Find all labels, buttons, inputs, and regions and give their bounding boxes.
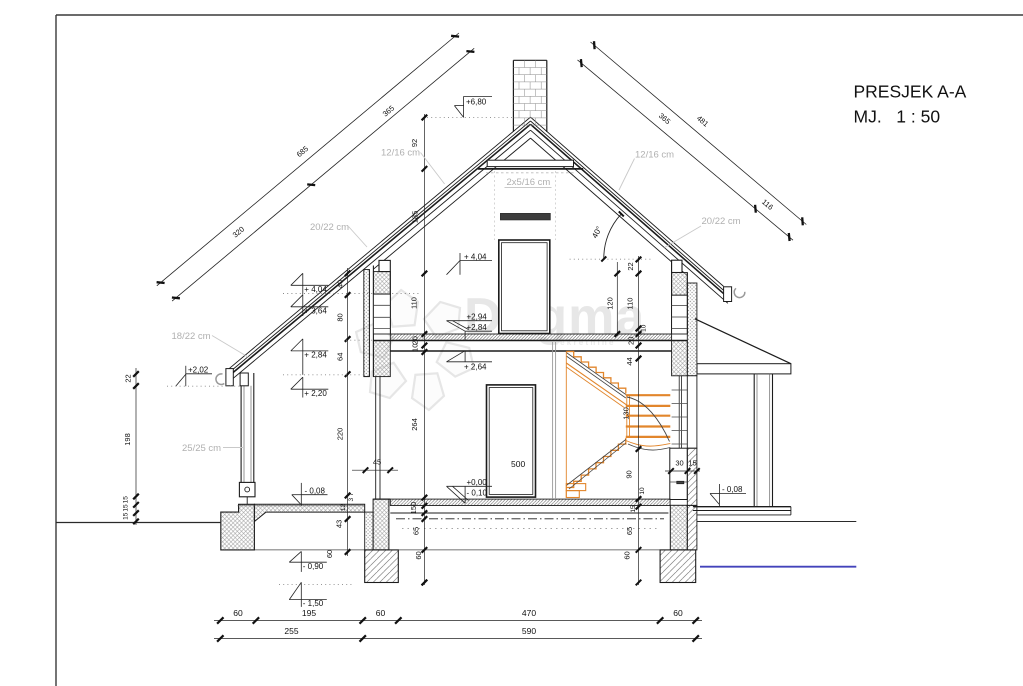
svg-text:+ 2,64: + 2,64 [464, 362, 487, 371]
svg-text:65: 65 [625, 527, 634, 535]
svg-text:110: 110 [626, 298, 635, 310]
svg-text:- 0,08: - 0,08 [305, 486, 326, 495]
svg-text:- 0,10: - 0,10 [467, 488, 488, 497]
svg-text:- 1,50: - 1,50 [303, 599, 324, 608]
svg-text:40: 40 [336, 280, 345, 288]
svg-text:22: 22 [626, 262, 635, 270]
svg-text:195: 195 [302, 608, 316, 618]
svg-text:90: 90 [625, 470, 634, 478]
svg-text:60: 60 [376, 608, 386, 618]
svg-text:15: 15 [123, 512, 130, 520]
svg-text:15: 15 [688, 459, 696, 468]
svg-text:+ 3,64: + 3,64 [304, 306, 327, 315]
svg-text:185: 185 [411, 211, 420, 224]
svg-text:60: 60 [414, 551, 423, 559]
svg-text:500: 500 [511, 459, 525, 469]
svg-text:10: 10 [641, 324, 648, 332]
svg-text:20/22 cm: 20/22 cm [702, 216, 741, 227]
svg-text:60: 60 [623, 551, 632, 559]
svg-text:130: 130 [622, 407, 631, 420]
svg-text:- 0,90: - 0,90 [303, 562, 324, 571]
svg-text:120: 120 [606, 297, 615, 310]
svg-text:+0,00: +0,00 [467, 478, 488, 487]
svg-text:15: 15 [630, 505, 637, 513]
svg-text:18/22 cm: 18/22 cm [172, 331, 211, 342]
svg-text:255: 255 [284, 626, 298, 636]
svg-text:15: 15 [123, 496, 130, 504]
svg-text:12/16 cm: 12/16 cm [381, 148, 420, 159]
svg-text:+6,80: +6,80 [466, 98, 487, 107]
svg-text:92: 92 [410, 139, 419, 147]
svg-text:64: 64 [336, 353, 345, 361]
svg-text:60: 60 [673, 608, 683, 618]
svg-text:264: 264 [410, 418, 419, 431]
svg-text:220: 220 [336, 428, 345, 441]
svg-text:30: 30 [675, 459, 683, 468]
svg-text:470: 470 [522, 608, 536, 618]
svg-text:- 0,08: - 0,08 [722, 485, 743, 494]
svg-text:590: 590 [522, 626, 536, 636]
svg-text:+ 4,04: + 4,04 [304, 285, 327, 294]
svg-text:12: 12 [340, 504, 347, 512]
svg-text:MJ. 1 : 50: MJ. 1 : 50 [854, 107, 941, 127]
svg-text:12/16 cm: 12/16 cm [635, 149, 674, 160]
svg-text:45: 45 [373, 458, 381, 467]
svg-text:+ 2,84: + 2,84 [304, 351, 327, 360]
svg-text:150: 150 [409, 502, 418, 515]
svg-text:+2,84: +2,84 [467, 323, 488, 332]
svg-text:20: 20 [627, 337, 636, 345]
svg-text:80: 80 [336, 313, 345, 321]
svg-text:25/25 cm: 25/25 cm [182, 443, 221, 454]
svg-text:60: 60 [233, 608, 243, 618]
svg-text:198: 198 [123, 433, 132, 446]
svg-text:20: 20 [411, 336, 420, 344]
svg-text:+2,02: +2,02 [188, 365, 209, 374]
svg-text:+2,94: +2,94 [467, 312, 488, 321]
svg-text:110: 110 [410, 297, 419, 309]
svg-text:PRESJEK A-A: PRESJEK A-A [854, 82, 967, 102]
svg-text:15: 15 [123, 504, 130, 512]
svg-text:22: 22 [124, 374, 133, 382]
svg-text:10: 10 [411, 344, 420, 352]
svg-text:2x5/16 cm: 2x5/16 cm [507, 177, 551, 188]
svg-text:44: 44 [625, 357, 634, 365]
svg-text:3 7: 3 7 [348, 492, 355, 501]
svg-text:43: 43 [335, 520, 344, 528]
svg-text:10: 10 [639, 487, 646, 495]
svg-text:60: 60 [325, 550, 334, 558]
svg-text:20/22 cm: 20/22 cm [310, 222, 349, 233]
svg-text:+ 2,20: + 2,20 [304, 389, 327, 398]
svg-text:+ 4,04: + 4,04 [464, 252, 487, 261]
svg-text:65: 65 [412, 527, 421, 535]
